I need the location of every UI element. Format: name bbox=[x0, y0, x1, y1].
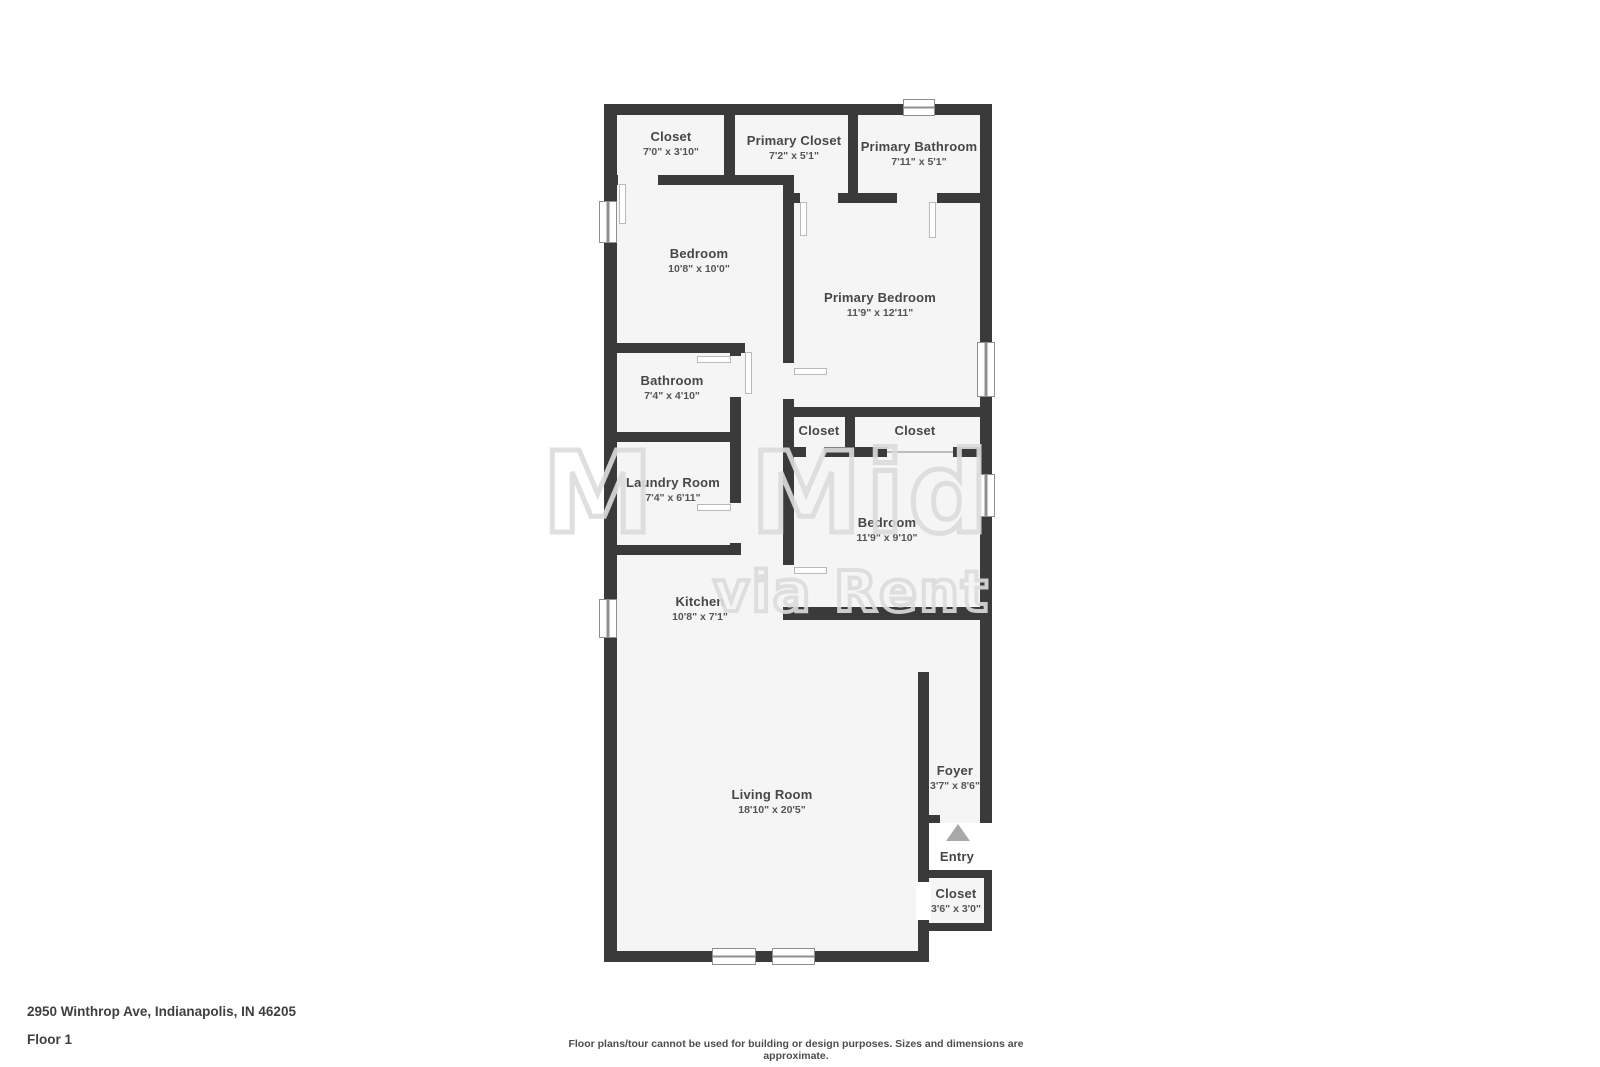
property-address: 2950 Winthrop Ave, Indianapolis, IN 4620… bbox=[27, 1004, 296, 1019]
floor-number-label: Floor 1 bbox=[27, 1032, 72, 1047]
disclaimer-text: Floor plans/tour cannot be used for buil… bbox=[546, 1038, 1046, 1062]
footer: 2950 Winthrop Ave, Indianapolis, IN 4620… bbox=[0, 0, 1600, 1067]
